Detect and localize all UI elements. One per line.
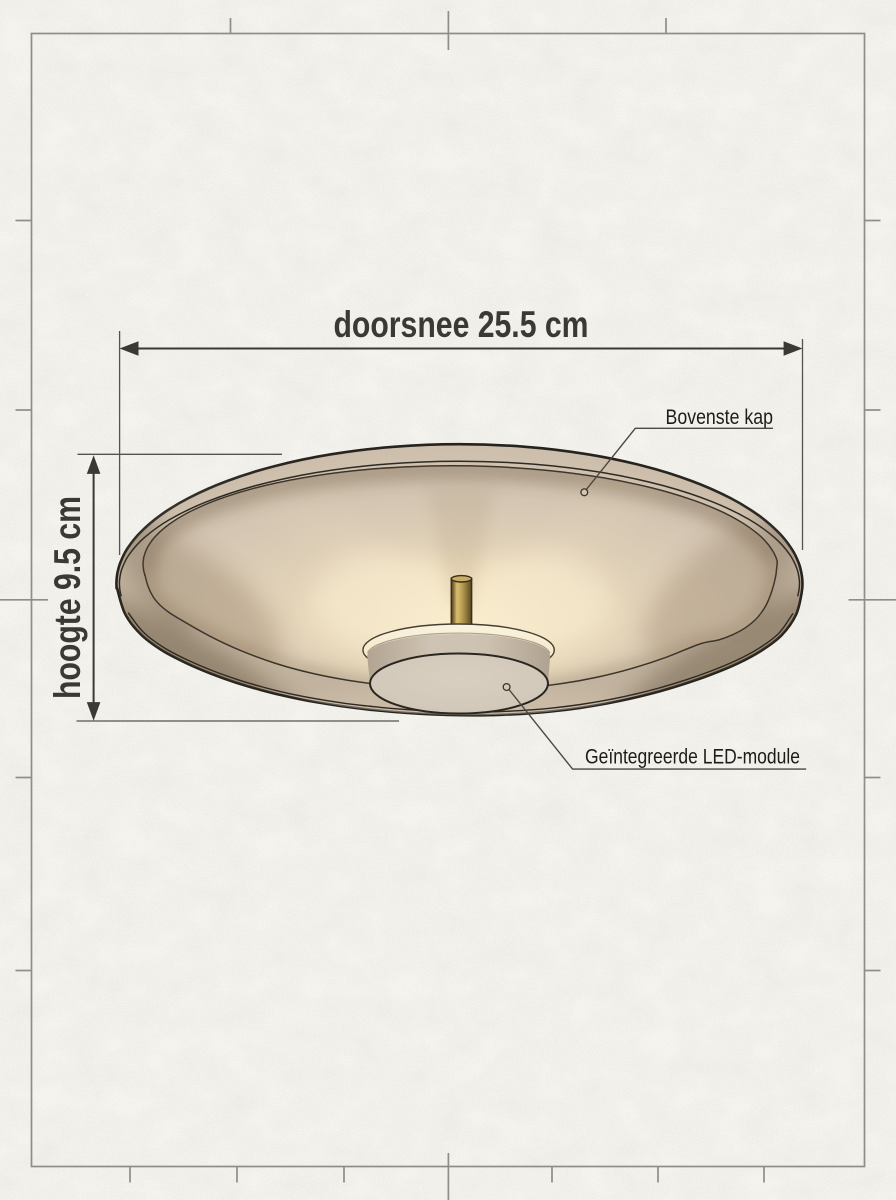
svg-text:Bovenste kap: Bovenste kap — [666, 406, 774, 429]
svg-text:doorsnee 25.5 cm: doorsnee 25.5 cm — [334, 304, 589, 345]
svg-text:hoogte 9.5 cm: hoogte 9.5 cm — [47, 496, 88, 699]
svg-text:Geïntegreerde LED-module: Geïntegreerde LED-module — [585, 746, 800, 769]
